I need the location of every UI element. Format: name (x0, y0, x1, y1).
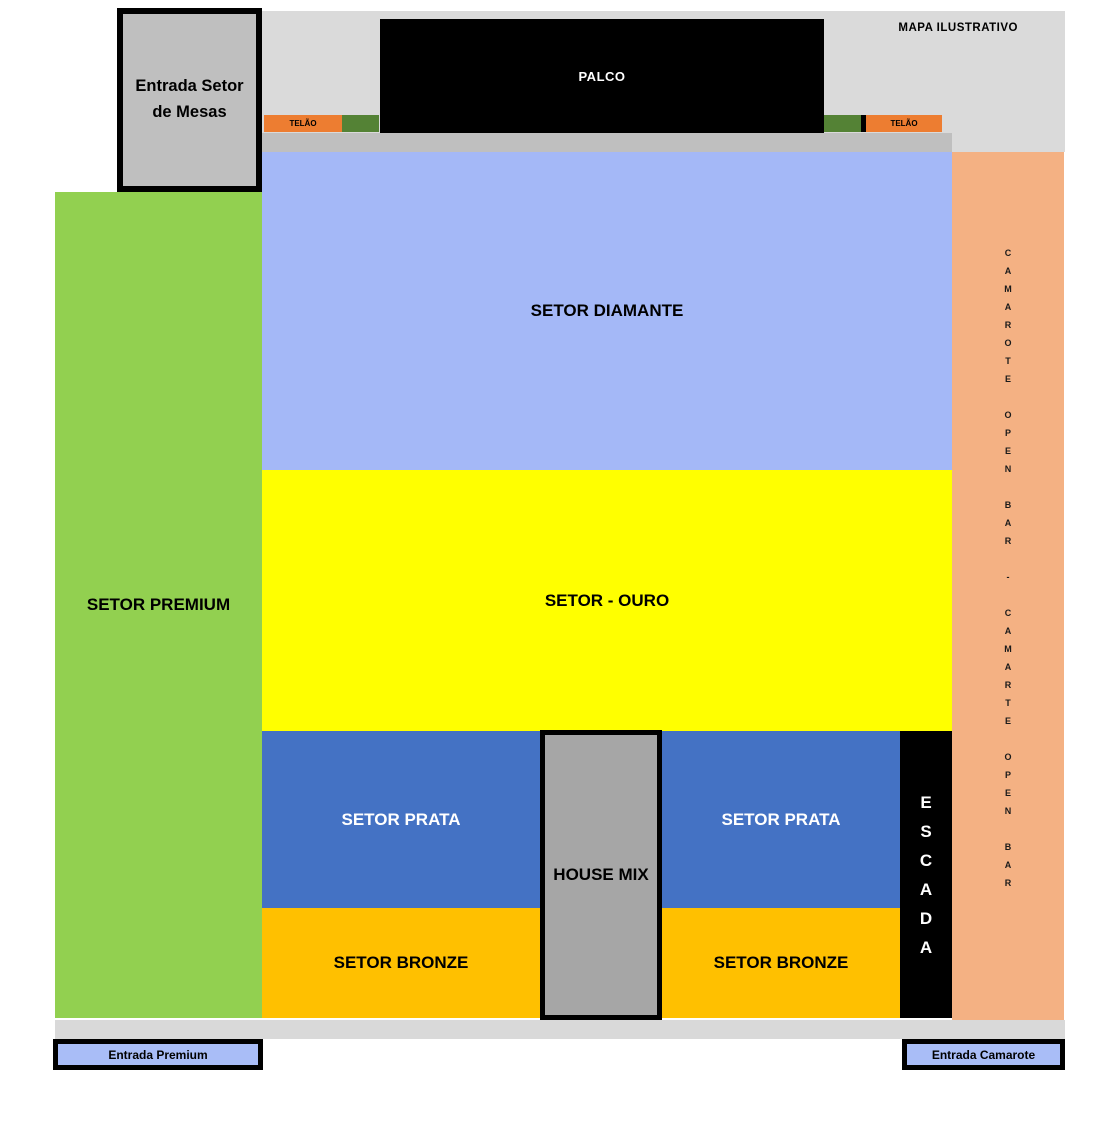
left-screen-block: TELÃO (264, 115, 342, 132)
sector-prata-left-label: SETOR PRATA (341, 810, 460, 830)
venue-map: MAPA ILUSTRATIVO PALCO TELÃO TELÃO Entra… (0, 0, 1116, 1146)
right-screen-label: TELÃO (890, 119, 917, 128)
sector-ouro: SETOR - OURO (262, 470, 952, 731)
left-screen-label: TELÃO (289, 119, 316, 128)
sector-prata-right: SETOR PRATA (662, 731, 900, 908)
left-screen-green-block (342, 115, 379, 132)
camarote-open-bar-label: CAMAROTEOPENBAR-CAMARTEOPENBAR (952, 152, 1064, 1020)
house-mix-booth: HOUSE MIX (540, 730, 662, 1020)
stage-block: PALCO (380, 19, 824, 133)
entrance-mesas-label: Entrada Setor de Mesas (133, 74, 246, 125)
right-screen-green-block (824, 115, 861, 132)
sector-bronze-right: SETOR BRONZE (662, 908, 900, 1018)
stage-label: PALCO (578, 69, 625, 84)
sector-prata-left: SETOR PRATA (262, 731, 540, 908)
entrance-camarote-label: Entrada Camarote (932, 1048, 1035, 1062)
entrance-mesas-box: Entrada Setor de Mesas (117, 8, 262, 192)
sector-bronze-right-label: SETOR BRONZE (714, 953, 849, 973)
right-screen-block: TELÃO (866, 115, 942, 132)
stairs-block: ESCADA (900, 731, 952, 1018)
walkway-strip (55, 1020, 1065, 1039)
sector-ouro-label: SETOR - OURO (545, 591, 669, 611)
sector-diamante-label: SETOR DIAMANTE (531, 301, 684, 321)
house-mix-label: HOUSE MIX (553, 865, 648, 885)
stage-front-band (262, 133, 952, 152)
sector-premium-label: SETOR PREMIUM (87, 595, 230, 615)
sector-bronze-left-label: SETOR BRONZE (334, 953, 469, 973)
entrance-premium-box: Entrada Premium (53, 1039, 263, 1070)
sector-diamante: SETOR DIAMANTE (262, 152, 952, 470)
camarote-open-bar-column: CAMAROTEOPENBAR-CAMARTEOPENBAR (952, 152, 1064, 1020)
sector-bronze-left: SETOR BRONZE (262, 908, 540, 1018)
entrance-premium-label: Entrada Premium (108, 1048, 207, 1062)
stairs-label: ESCADA (900, 731, 952, 1018)
entrance-camarote-box: Entrada Camarote (902, 1039, 1065, 1070)
sector-premium: SETOR PREMIUM (55, 192, 262, 1018)
sector-prata-right-label: SETOR PRATA (721, 810, 840, 830)
map-disclaimer-label: MAPA ILUSTRATIVO (898, 22, 1018, 34)
